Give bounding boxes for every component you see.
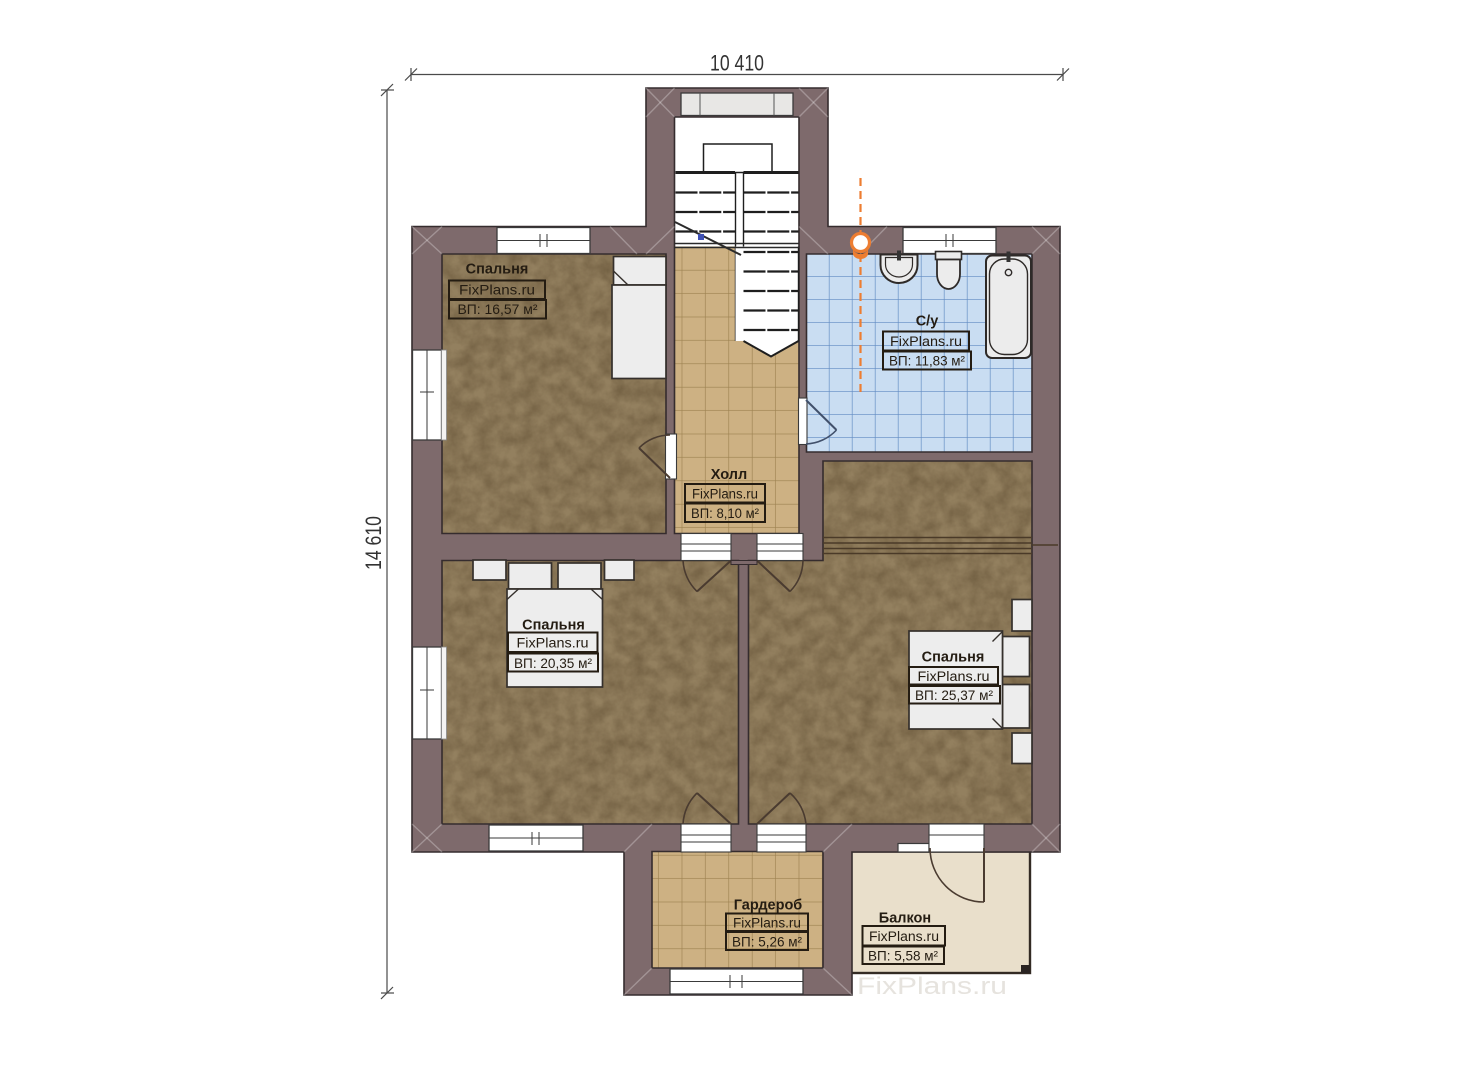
svg-text:С/у: С/у bbox=[916, 314, 939, 330]
svg-text:Балкон: Балкон bbox=[879, 911, 931, 927]
svg-text:FixPlans.ru: FixPlans.ru bbox=[733, 916, 801, 931]
svg-text:ВП: 11,83 м²: ВП: 11,83 м² bbox=[889, 354, 965, 369]
svg-text:FixPlans.ru: FixPlans.ru bbox=[918, 669, 990, 684]
svg-text:FixPlans.ru: FixPlans.ru bbox=[459, 283, 535, 298]
svg-text:Гардероб: Гардероб bbox=[734, 898, 803, 914]
svg-text:FixPlans.ru: FixPlans.ru bbox=[857, 973, 1007, 1000]
svg-text:ВП: 20,35 м²: ВП: 20,35 м² bbox=[514, 656, 592, 671]
svg-text:ВП: 5,26 м²: ВП: 5,26 м² bbox=[732, 935, 803, 950]
svg-text:FixPlans.ru: FixPlans.ru bbox=[692, 487, 758, 502]
svg-text:FixPlans.ru: FixPlans.ru bbox=[869, 929, 939, 944]
svg-text:Спальня: Спальня bbox=[466, 262, 529, 278]
svg-text:14 610: 14 610 bbox=[361, 516, 386, 570]
svg-text:ВП: 8,10 м²: ВП: 8,10 м² bbox=[691, 506, 759, 521]
svg-text:ВП: 16,57 м²: ВП: 16,57 м² bbox=[458, 302, 539, 317]
svg-text:Спальня: Спальня bbox=[922, 650, 985, 666]
svg-text:FixPlans.ru: FixPlans.ru bbox=[517, 636, 589, 651]
svg-text:10 410: 10 410 bbox=[710, 51, 764, 76]
svg-text:FixPlans.ru: FixPlans.ru bbox=[890, 334, 962, 349]
svg-text:Спальня: Спальня bbox=[522, 618, 585, 634]
svg-text:ВП: 25,37 м²: ВП: 25,37 м² bbox=[915, 688, 993, 703]
svg-text:ВП: 5,58 м²: ВП: 5,58 м² bbox=[868, 949, 939, 964]
svg-text:Холл: Холл bbox=[711, 467, 747, 483]
